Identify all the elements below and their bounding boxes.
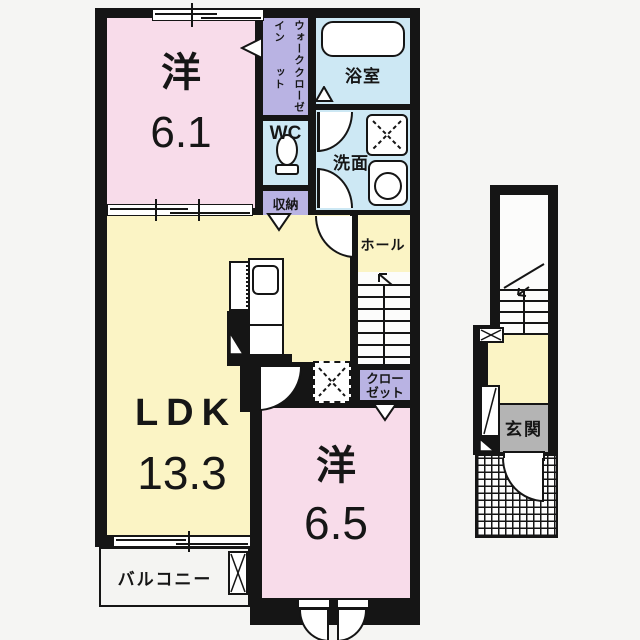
refrigerator-x-icon (316, 364, 348, 400)
kitchen-side-counter (229, 261, 248, 311)
stairs-2f-centerline (383, 284, 385, 366)
kitchen-sink-icon (252, 265, 279, 295)
kitchen-wall-notch (229, 332, 245, 356)
balcony-window (113, 536, 251, 547)
window-x-lines (479, 328, 503, 342)
bedroom2-label: 洋 (262, 436, 410, 488)
floor-plan-image: 洋 6.1 ウォークイン クローゼット 浴室 WC 洗面 収納 ホール クロー … (0, 0, 640, 640)
bedroom1-label: 洋 (107, 42, 255, 96)
walk-in-closet-label-col1: ウォークイン (263, 20, 308, 67)
window-tick (188, 531, 190, 552)
entrance-step-icon (479, 438, 496, 453)
ldk-label: LDK (107, 388, 257, 438)
walk-in-closet-label-col2: クローゼット (263, 67, 308, 114)
bedroom2-size: 6.5 (262, 494, 410, 552)
bathroom-door-icon (314, 86, 334, 103)
kitchen-counter-divider (248, 324, 284, 326)
closet-opening-icon (372, 402, 398, 422)
window-tick (191, 3, 193, 27)
hall-label: ホール (356, 236, 410, 254)
stairs-1f-arrow-icon (514, 284, 532, 298)
washroom-label: 洗面 (312, 150, 390, 172)
casement-window-right (336, 598, 370, 609)
water-heater-x-icon (229, 552, 247, 594)
window-tick (155, 199, 157, 221)
storage-opening-icon (266, 212, 292, 232)
bathroom-label: 浴室 (316, 62, 410, 86)
closet-label-line1: クロー (360, 372, 410, 386)
casement-arc-left (299, 610, 329, 640)
bedroom1-sliding-door (107, 204, 253, 216)
stairs-2f-arrow-icon (372, 270, 396, 288)
storage-label: 収納 (263, 193, 308, 213)
closet-label-line2: ゼット (360, 386, 410, 400)
wc-label: WC (263, 121, 308, 147)
casement-arc-right (337, 610, 367, 640)
balcony-label: バルコニー (103, 566, 227, 588)
washer-pan-x-icon (370, 118, 404, 152)
ldk-size: 13.3 (107, 444, 257, 502)
washbasin-bowl-icon (374, 172, 402, 200)
closet-label: クロー ゼット (360, 372, 410, 400)
entrance-label: 玄関 (500, 415, 548, 439)
casement-window-left (297, 598, 331, 609)
bathtub-icon (321, 21, 405, 57)
bedroom1-size: 6.1 (107, 104, 255, 162)
shoe-cabinet-diagonal (481, 386, 499, 436)
window-tick (198, 199, 200, 221)
walk-in-closet-label: ウォークイン クローゼット (263, 20, 308, 113)
bedroom1-window (152, 9, 264, 21)
